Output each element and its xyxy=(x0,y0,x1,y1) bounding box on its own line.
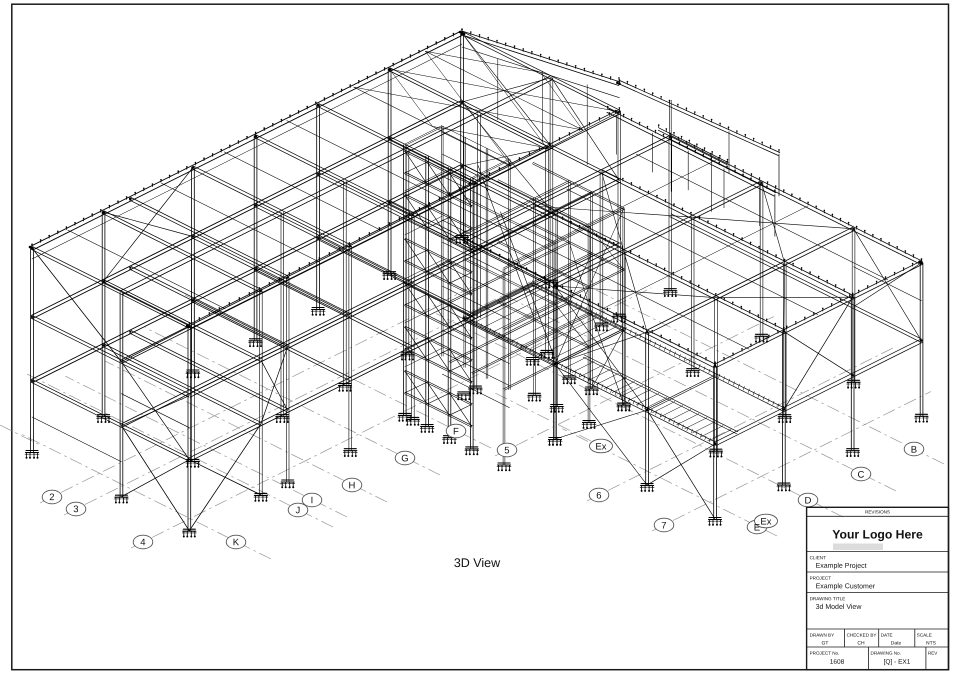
svg-text:DRAWING No.: DRAWING No. xyxy=(870,651,900,656)
svg-text:Ex: Ex xyxy=(595,441,606,452)
svg-text:GT: GT xyxy=(822,640,829,646)
svg-text:3: 3 xyxy=(73,504,78,515)
svg-text:H: H xyxy=(348,480,355,491)
svg-text:DATE: DATE xyxy=(881,633,893,638)
svg-text:E: E xyxy=(754,523,760,534)
svg-text:5: 5 xyxy=(504,445,509,456)
svg-text:K: K xyxy=(233,537,240,548)
svg-text:PROJECT No.: PROJECT No. xyxy=(810,651,840,656)
svg-text:PROJECT: PROJECT xyxy=(810,576,832,581)
svg-text:CH: CH xyxy=(857,640,865,646)
svg-text:REV: REV xyxy=(928,651,938,656)
svg-text:D: D xyxy=(804,496,811,507)
svg-text:SCALE: SCALE xyxy=(917,633,932,638)
svg-text:Date: Date xyxy=(891,640,902,646)
svg-text:F: F xyxy=(453,426,459,437)
svg-text:J: J xyxy=(296,505,301,516)
svg-text:7: 7 xyxy=(661,520,666,531)
svg-text:Your Logo Here: Your Logo Here xyxy=(832,527,923,541)
svg-text:CHECKED BY: CHECKED BY xyxy=(847,633,877,638)
svg-text:C: C xyxy=(857,470,864,481)
svg-text:4: 4 xyxy=(140,537,145,548)
svg-text:B: B xyxy=(911,445,917,456)
svg-text:3D View: 3D View xyxy=(454,556,501,570)
svg-text:DRAWN BY: DRAWN BY xyxy=(810,633,835,638)
svg-text:Example Project: Example Project xyxy=(816,563,867,570)
svg-text:I: I xyxy=(311,495,314,506)
svg-text:Ex: Ex xyxy=(760,517,771,528)
svg-text:3d Model View: 3d Model View xyxy=(816,604,863,611)
svg-text:[Q] - EX1: [Q] - EX1 xyxy=(884,659,911,666)
svg-text:Example Customer: Example Customer xyxy=(816,583,876,590)
svg-text:DRAWING TITLE: DRAWING TITLE xyxy=(810,596,846,601)
svg-text:2: 2 xyxy=(49,492,54,503)
svg-text:REVISIONS: REVISIONS xyxy=(865,509,890,514)
svg-text:G: G xyxy=(401,453,408,464)
svg-text:6: 6 xyxy=(596,490,601,501)
svg-text:CLIENT: CLIENT xyxy=(810,555,827,560)
svg-text:1608: 1608 xyxy=(830,659,845,666)
svg-text:NTS: NTS xyxy=(926,640,937,646)
